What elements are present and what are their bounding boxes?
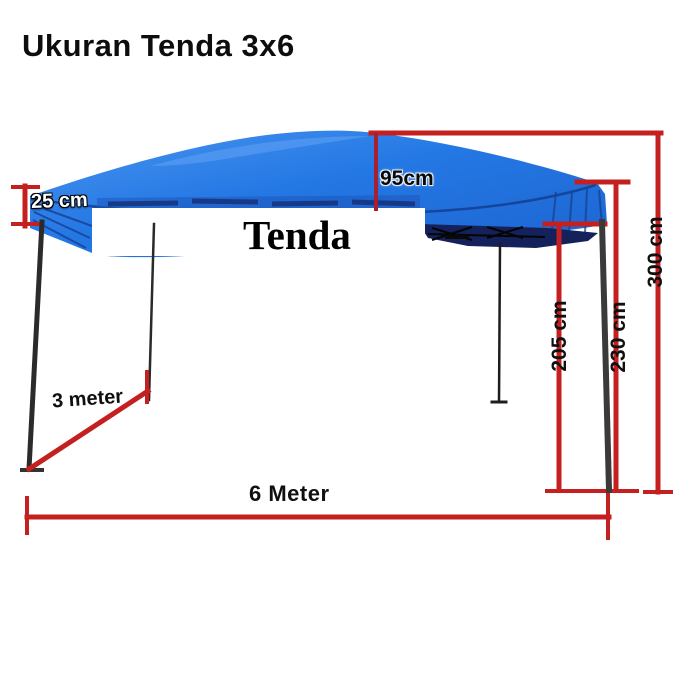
tenda-product-label: Tenda xyxy=(197,211,397,259)
tent-legs xyxy=(22,222,609,490)
dim-label-95cm: 95cm xyxy=(380,167,434,191)
dim-label-6meter: 6 Meter xyxy=(249,481,330,507)
tent-diagram xyxy=(0,0,700,700)
frame-bar xyxy=(445,235,469,239)
leg-rear-middle xyxy=(499,244,500,402)
dim-label-205cm: 205 cm xyxy=(548,300,572,371)
dim-label-25cm: 25 cm xyxy=(31,189,88,214)
dim-label-230cm: 230 cm xyxy=(607,301,631,372)
dim-label-300cm: 300 cm xyxy=(644,216,668,287)
depth-dimension xyxy=(29,372,148,469)
leg-front-left xyxy=(29,222,42,469)
